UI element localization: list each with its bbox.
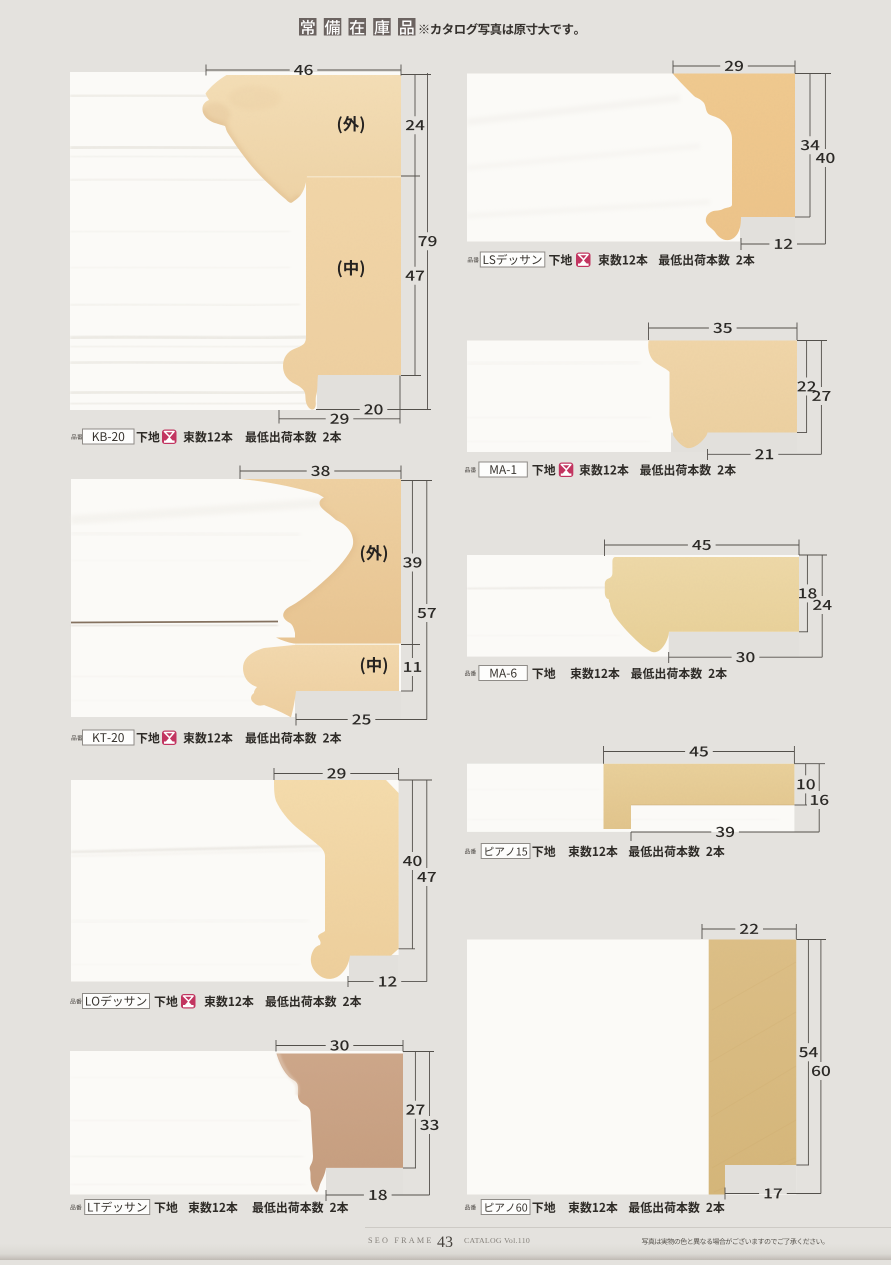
svg-text:SEO FRAME: SEO FRAME xyxy=(368,1236,434,1245)
svg-text:CATALOG Vol.110: CATALOG Vol.110 xyxy=(464,1236,530,1245)
